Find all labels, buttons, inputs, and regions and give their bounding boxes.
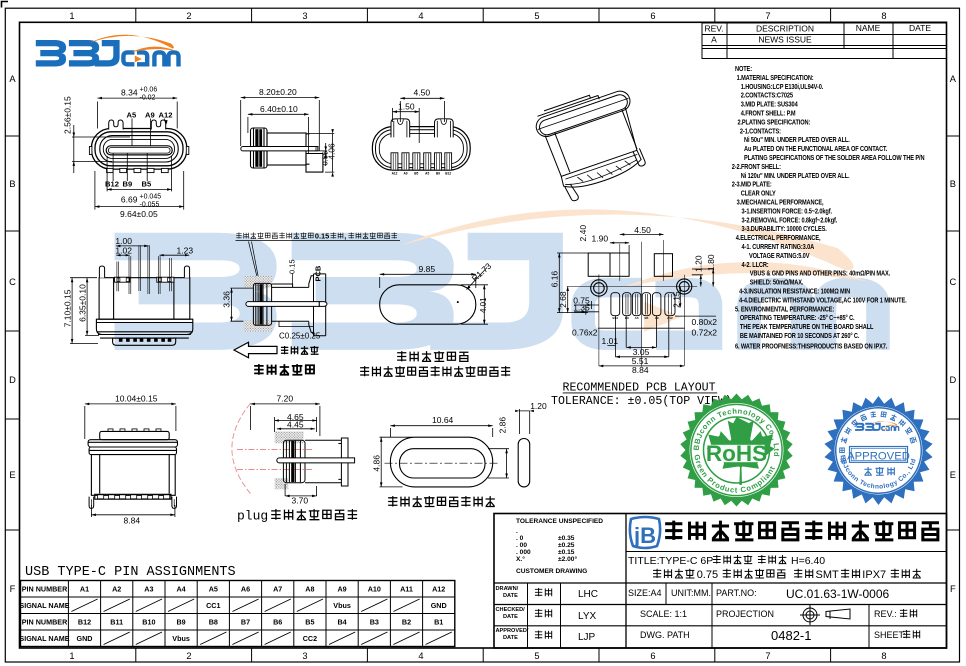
svg-text:B6: B6 — [273, 618, 282, 627]
svg-text:DATE: DATE — [503, 614, 518, 620]
svg-text:A5: A5 — [127, 111, 137, 120]
svg-text:NOTE:: NOTE: — [735, 66, 752, 74]
svg-text:-0.02: -0.02 — [140, 95, 156, 102]
svg-text:A9: A9 — [403, 172, 407, 176]
svg-text:A: A — [9, 74, 16, 84]
svg-text:2.40: 2.40 — [578, 225, 588, 242]
svg-text:3: 3 — [302, 651, 307, 661]
svg-text:SIGNAL NAME: SIGNAL NAME — [19, 601, 69, 610]
svg-text:LJP: LJP — [578, 632, 596, 643]
svg-text:2.CONTACTS:C7025: 2.CONTACTS:C7025 — [741, 92, 794, 100]
svg-text:+0.045: +0.045 — [140, 194, 162, 201]
svg-text:DATE: DATE — [503, 593, 518, 599]
svg-text:3.70: 3.70 — [292, 496, 309, 506]
svg-text:1.23: 1.23 — [177, 246, 194, 256]
svg-text:4: 4 — [418, 651, 423, 661]
svg-text:3: 3 — [302, 11, 307, 21]
svg-text:3.MECHANICAL PERFORMANCE,: 3.MECHANICAL PERFORMANCE, — [737, 199, 824, 207]
svg-text:LHC: LHC — [578, 589, 598, 600]
svg-text:A8: A8 — [305, 585, 314, 594]
svg-text:3.36: 3.36 — [221, 291, 231, 308]
svg-text:B5: B5 — [414, 172, 418, 176]
svg-text:0.80x2: 0.80x2 — [692, 317, 718, 327]
svg-text:A10: A10 — [368, 585, 381, 594]
svg-text:10.64: 10.64 — [432, 415, 454, 425]
svg-text:4.45: 4.45 — [287, 420, 304, 430]
svg-text:2.56±0.15: 2.56±0.15 — [63, 96, 73, 134]
svg-text:A12: A12 — [392, 172, 398, 176]
svg-text:TYPE-C 6P: TYPE-C 6P — [659, 555, 713, 567]
svg-text:B12: B12 — [445, 172, 451, 176]
svg-text:CUSTOMER DRAWING: CUSTOMER DRAWING — [516, 568, 587, 575]
svg-text:8: 8 — [881, 651, 886, 661]
svg-text:. 0: . 0 — [516, 535, 524, 542]
svg-text:DATE: DATE — [909, 23, 931, 33]
svg-text:TITLE:: TITLE: — [628, 555, 660, 567]
svg-text:UNIT:MM.: UNIT:MM. — [671, 588, 711, 598]
svg-text:3-2.REMOVAL FORCE: 0.8kgf~2.0k: 3-2.REMOVAL FORCE: 0.8kgf~2.0kgf. — [742, 217, 838, 225]
svg-text:F: F — [950, 584, 956, 594]
svg-text:CC1: CC1 — [206, 601, 220, 610]
svg-text:3.MID PLATE: SUS304: 3.MID PLATE: SUS304 — [741, 101, 798, 109]
svg-text:RoHS: RoHS — [706, 441, 767, 466]
svg-text:B5: B5 — [142, 180, 152, 189]
svg-text:DWG. PATH: DWG. PATH — [640, 630, 690, 640]
svg-text:B5: B5 — [305, 618, 314, 627]
svg-text:LYX: LYX — [578, 611, 596, 622]
svg-text:E: E — [950, 470, 956, 480]
svg-text:6: 6 — [650, 651, 655, 661]
svg-text:1.01: 1.01 — [602, 336, 619, 346]
svg-text:4: 4 — [418, 11, 423, 21]
svg-text:REV.:: REV.: — [874, 609, 897, 619]
svg-text:2.86: 2.86 — [497, 417, 507, 434]
svg-text:A: A — [711, 35, 717, 45]
svg-text:PIN NUMBER: PIN NUMBER — [22, 585, 68, 594]
svg-text:. 00: . 00 — [516, 542, 527, 549]
svg-text:C: C — [9, 277, 16, 287]
svg-text:OPERATING TEMPERATURE: -25° C~: OPERATING TEMPERATURE: -25° C~+85° C. — [740, 314, 855, 323]
svg-text:2-3.MID PLATE:: 2-3.MID PLATE: — [732, 181, 772, 189]
svg-text:4.ELECTRICAL PERFORMANCE,: 4.ELECTRICAL PERFORMANCE, — [736, 235, 821, 243]
svg-text:B9: B9 — [176, 618, 185, 627]
svg-text:±2.00°: ±2.00° — [558, 555, 577, 563]
svg-text:4-3.INSULATION RESISTANCE: 100: 4-3.INSULATION RESISTANCE: 100MΩ MIN — [739, 288, 850, 296]
svg-text:8.84: 8.84 — [124, 516, 141, 526]
svg-text:B: B — [950, 179, 956, 189]
svg-text:D: D — [949, 375, 956, 385]
svg-text:GND: GND — [77, 634, 93, 643]
svg-text:A3: A3 — [144, 585, 153, 594]
svg-text:B12: B12 — [78, 618, 91, 627]
svg-text:1: 1 — [69, 651, 74, 661]
svg-text:4.86: 4.86 — [371, 455, 381, 472]
svg-text:A4: A4 — [176, 585, 185, 594]
svg-text:B9: B9 — [436, 172, 440, 176]
svg-text:±0.15: ±0.15 — [558, 549, 575, 556]
svg-text:NAME: NAME — [856, 23, 881, 33]
svg-text:2-2.FRONT SHELL:: 2-2.FRONT SHELL: — [732, 163, 781, 171]
svg-text:PART.NO:: PART.NO: — [716, 588, 757, 598]
svg-text:Ni 50u" MIN. UNDER PLATED OVER: Ni 50u" MIN. UNDER PLATED OVER ALL. — [744, 137, 850, 145]
svg-text:B7: B7 — [241, 618, 250, 627]
svg-text:A5: A5 — [635, 316, 639, 320]
svg-text:1.MATERIAL SPECIFICATION:: 1.MATERIAL SPECIFICATION: — [737, 74, 814, 82]
svg-text:±0.25: ±0.25 — [558, 542, 575, 549]
svg-text:8.34: 8.34 — [121, 88, 138, 98]
svg-text:Vbus: Vbus — [333, 601, 351, 610]
svg-text:2-1.CONTACTS:: 2-1.CONTACTS: — [740, 128, 781, 136]
svg-text:B9: B9 — [625, 316, 629, 320]
svg-text:1.20: 1.20 — [694, 255, 704, 272]
svg-text:B11: B11 — [110, 618, 123, 627]
svg-text:6.40±0.10: 6.40±0.10 — [260, 104, 298, 114]
svg-text:A2: A2 — [112, 585, 121, 594]
svg-text:2: 2 — [186, 11, 191, 21]
svg-text:2: 2 — [186, 651, 191, 661]
svg-text:Vbus: Vbus — [172, 634, 190, 643]
svg-text:SHIELD: 50mΩ/MAX.: SHIELD: 50mΩ/MAX. — [750, 279, 804, 287]
svg-text:DATE: DATE — [503, 635, 518, 641]
svg-text:X.°: X.° — [516, 555, 525, 563]
svg-text:A6: A6 — [241, 585, 250, 594]
svg-text:.: . — [516, 528, 518, 535]
svg-text:+0.06: +0.06 — [140, 87, 158, 94]
svg-text:C0.25±0.25: C0.25±0.25 — [279, 332, 321, 341]
svg-text:SCALE: 1:1: SCALE: 1:1 — [640, 609, 687, 619]
svg-text:0.75: 0.75 — [697, 569, 718, 581]
svg-text:USB TYPE-C PIN ASSIGNMENTS: USB TYPE-C PIN ASSIGNMENTS — [25, 565, 236, 580]
svg-text:PCB: PCB — [314, 265, 323, 281]
svg-text:4.FRONT SHELL: P.M: 4.FRONT SHELL: P.M — [741, 110, 796, 118]
svg-text:UC.01.63-1W-0006: UC.01.63-1W-0006 — [786, 587, 889, 601]
svg-text:A12: A12 — [159, 111, 173, 120]
svg-text:1.20: 1.20 — [530, 401, 547, 411]
svg-text:5: 5 — [534, 11, 539, 21]
svg-text:8: 8 — [881, 11, 886, 21]
svg-text:B4: B4 — [337, 618, 346, 627]
svg-text:0.72x2: 0.72x2 — [692, 328, 718, 338]
svg-text:jB: jB — [633, 523, 656, 548]
svg-text:6: 6 — [650, 11, 655, 21]
svg-text:7: 7 — [765, 11, 770, 21]
svg-text:8.20±0.20: 8.20±0.20 — [259, 87, 297, 97]
svg-text:,: , — [344, 232, 346, 241]
svg-text:SIGNAL NAME: SIGNAL NAME — [19, 634, 69, 643]
svg-text:1: 1 — [69, 11, 74, 21]
svg-text:0.15: 0.15 — [288, 259, 297, 274]
svg-text:H=6.40: H=6.40 — [791, 555, 825, 567]
svg-text:B: B — [9, 179, 15, 189]
svg-text:2.68: 2.68 — [558, 291, 568, 308]
svg-text:10.04±0.15: 10.04±0.15 — [115, 393, 158, 403]
svg-text:3-3.DURABILITY: 10000 CYCLES.: 3-3.DURABILITY: 10000 CYCLES. — [742, 226, 827, 234]
svg-text:0.56: 0.56 — [321, 151, 330, 166]
svg-text:A1: A1 — [80, 585, 89, 594]
svg-text:B9: B9 — [123, 180, 133, 189]
svg-text:1.35: 1.35 — [573, 302, 590, 312]
svg-text:B1: B1 — [434, 618, 443, 627]
svg-text:3-1.INSERTION FORCE: 0.5~2.0kg: 3-1.INSERTION FORCE: 0.5~2.0kgf. — [742, 208, 833, 216]
svg-text:4-4.DIELECTRIC WITHSTAND VOLTA: 4-4.DIELECTRIC WITHSTAND VOLTAGE,AC 100V… — [739, 297, 907, 305]
svg-text:DESCRIPTION: DESCRIPTION — [756, 24, 814, 34]
svg-text:APPROVED: APPROVED — [847, 450, 910, 462]
svg-text:REV.: REV. — [704, 24, 723, 34]
svg-text:B3: B3 — [370, 618, 379, 627]
svg-text:A5: A5 — [209, 585, 218, 594]
svg-text:GND: GND — [431, 601, 447, 610]
svg-text:D: D — [9, 375, 16, 385]
svg-text:1.02: 1.02 — [115, 246, 132, 256]
svg-text:7: 7 — [765, 651, 770, 661]
svg-text:2.15: 2.15 — [672, 291, 682, 308]
svg-text:TOLERANCE UNSPECIFIED: TOLERANCE UNSPECIFIED — [516, 518, 603, 525]
svg-text:A9: A9 — [655, 316, 659, 320]
svg-text:6.69: 6.69 — [121, 195, 138, 205]
svg-text:9.85: 9.85 — [419, 264, 436, 274]
svg-text:4.50: 4.50 — [634, 225, 651, 235]
svg-text:9.64±0.05: 9.64±0.05 — [120, 209, 158, 219]
svg-text:7.20: 7.20 — [277, 393, 294, 403]
svg-text:-0.055: -0.055 — [140, 202, 160, 209]
svg-text:5. ENVIRONMENTAL PERFORMANCE:: 5. ENVIRONMENTAL PERFORMANCE: — [735, 306, 834, 314]
svg-text:A: A — [950, 74, 957, 84]
svg-text:IPX7: IPX7 — [862, 569, 886, 581]
svg-text:A11: A11 — [400, 585, 413, 594]
svg-text:8.84: 8.84 — [632, 365, 649, 375]
svg-text:F: F — [10, 584, 16, 594]
svg-text:1.HOUSING:LCP E130i,UL94V-0.: 1.HOUSING:LCP E130i,UL94V-0. — [741, 83, 824, 91]
svg-text:0.15: 0.15 — [315, 232, 329, 241]
svg-text:BE MAINTAINED FOR 10 SECONDS A: BE MAINTAINED FOR 10 SECONDS AT 260° C. — [740, 331, 860, 340]
svg-text:±0.35: ±0.35 — [558, 535, 575, 542]
svg-text:6.16: 6.16 — [550, 271, 560, 288]
svg-text:7.10±0.15: 7.10±0.15 — [62, 289, 72, 327]
svg-text:2.PLATING SPECIFICATION:: 2.PLATING SPECIFICATION: — [737, 119, 810, 127]
svg-text:A12: A12 — [432, 585, 445, 594]
svg-text:B2: B2 — [402, 618, 411, 627]
svg-text:SHEET:: SHEET: — [874, 630, 906, 640]
svg-text:A9: A9 — [337, 585, 346, 594]
svg-text:THE PEAK TEMPERATURE ON THE BO: THE PEAK TEMPERATURE ON THE BOARD SHALL — [740, 324, 874, 332]
svg-text:1.50: 1.50 — [398, 101, 415, 111]
svg-text:0.76x2: 0.76x2 — [572, 328, 598, 338]
svg-text:B10: B10 — [142, 618, 155, 627]
svg-text:4.50: 4.50 — [414, 88, 431, 98]
svg-text:0482-1: 0482-1 — [771, 628, 811, 643]
svg-text:CHECKED/: CHECKED/ — [496, 607, 526, 613]
svg-text:1.80: 1.80 — [706, 254, 716, 271]
svg-text:A7: A7 — [273, 585, 282, 594]
svg-text:VOLTAGE RATING:5.0V: VOLTAGE RATING:5.0V — [749, 252, 810, 260]
svg-text:6.35±0.10: 6.35±0.10 — [77, 284, 87, 322]
svg-text:PIN NUMBER: PIN NUMBER — [22, 618, 68, 627]
svg-text:B5: B5 — [644, 316, 648, 320]
svg-text:4.01: 4.01 — [479, 297, 488, 313]
svg-text:CC2: CC2 — [303, 634, 317, 643]
svg-text:. 000: . 000 — [516, 549, 531, 556]
svg-text:VBUS & GND PINS AND OTHER PINS: VBUS & GND PINS AND OTHER PINS: 40mΩ/PIN… — [750, 270, 891, 278]
svg-text:APPROVED/: APPROVED/ — [496, 628, 529, 634]
svg-text:SMT: SMT — [816, 569, 840, 581]
svg-text:CLEAR ONLY: CLEAR ONLY — [741, 190, 777, 198]
svg-text:PLATING SPECIFICATIONS OF THE: PLATING SPECIFICATIONS OF THE SOLDER ARE… — [744, 155, 925, 163]
svg-text:NEWS ISSUE: NEWS ISSUE — [758, 35, 812, 45]
svg-text:A12: A12 — [667, 316, 673, 320]
svg-text:5: 5 — [534, 651, 539, 661]
svg-text:4-1. CURRENT RATING:3.0A: 4-1. CURRENT RATING:3.0A — [742, 244, 815, 252]
svg-text:E: E — [9, 470, 15, 480]
svg-text:plug: plug — [237, 509, 268, 524]
svg-text:A5: A5 — [425, 172, 429, 176]
svg-text:1.90: 1.90 — [592, 233, 609, 243]
svg-text:Ni 120u" MIN. UNDER PLATED OVE: Ni 120u" MIN. UNDER PLATED OVER ALL. — [741, 172, 850, 180]
svg-text:C: C — [949, 277, 956, 287]
svg-text:6. WATER PROOFNESS:THISPRODUCT: 6. WATER PROOFNESS:THISPRODUCTIS BASED O… — [735, 343, 888, 351]
svg-text:DRAWN/: DRAWN/ — [496, 586, 519, 592]
svg-text:B8: B8 — [209, 618, 218, 627]
svg-text:4-2. LLCR:: 4-2. LLCR: — [742, 261, 769, 269]
svg-text:Au PLATED ON THE FUNCTIONAL AR: Au PLATED ON THE FUNCTIONAL AREA OF CONT… — [744, 146, 888, 154]
svg-text:SIZE:A4: SIZE:A4 — [628, 588, 662, 598]
svg-text:A9: A9 — [145, 111, 155, 120]
svg-text:PROJECTION: PROJECTION — [716, 609, 774, 619]
